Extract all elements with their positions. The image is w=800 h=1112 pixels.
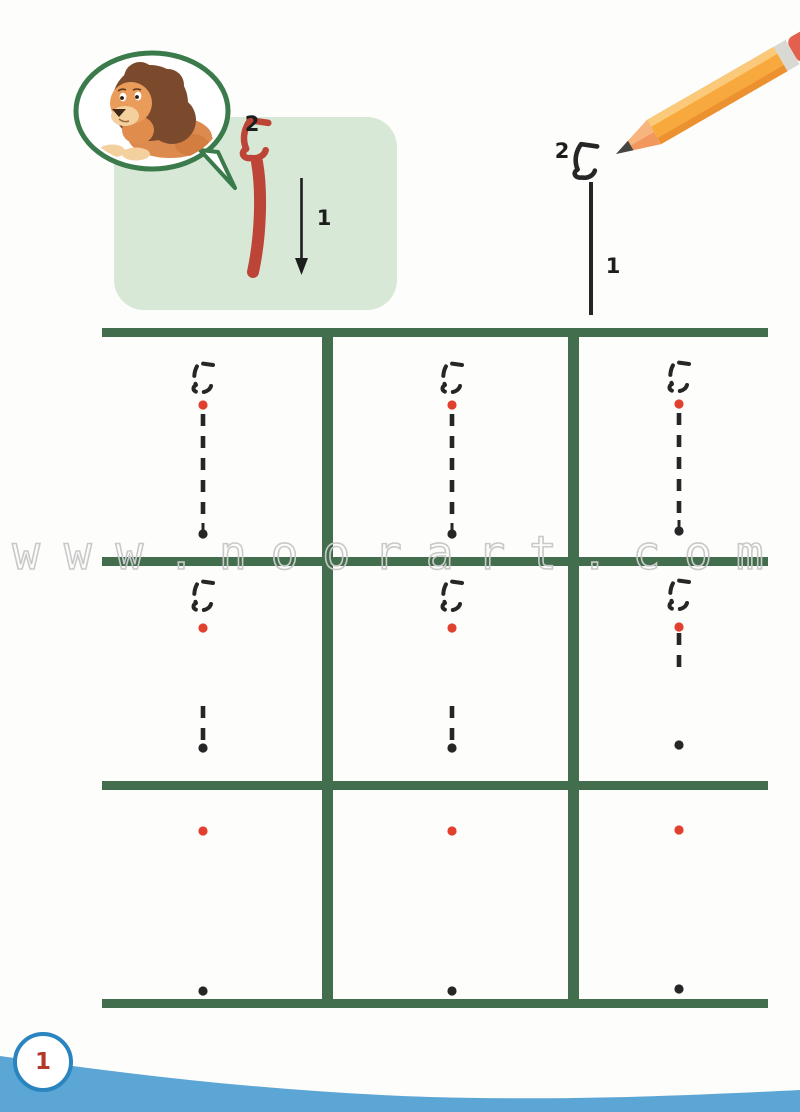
page-number: 1: [35, 1049, 51, 1075]
worksheet-page: www.noorart.com 2 1 2 1 1: [0, 0, 800, 1112]
page-number-badge: 1: [13, 1032, 73, 1092]
footer-wave: [0, 0, 800, 1112]
